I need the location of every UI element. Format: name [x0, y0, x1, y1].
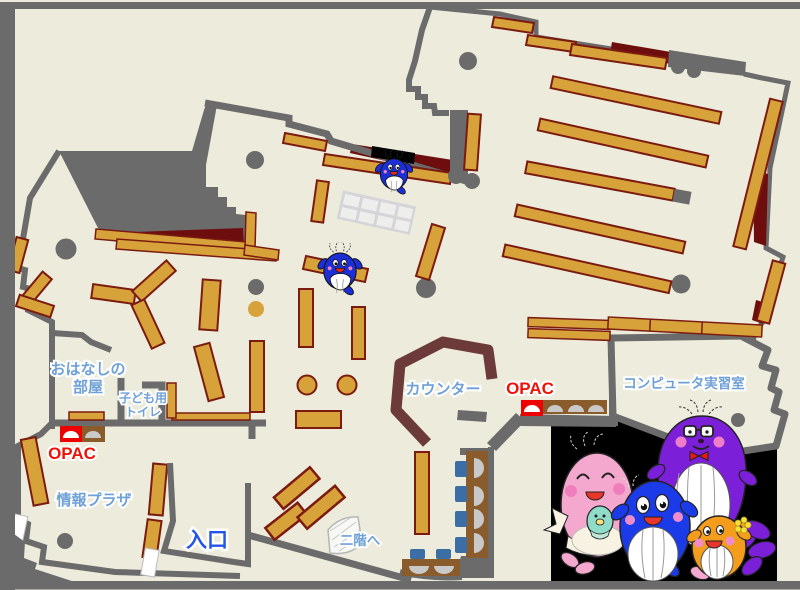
svg-text:部屋: 部屋	[73, 378, 103, 396]
svg-text:トイレ: トイレ	[125, 405, 161, 419]
svg-text:おはなしの: おはなしの	[50, 361, 125, 378]
svg-text:情報プラザ: 情報プラザ	[56, 491, 131, 509]
svg-text:入口: 入口	[186, 529, 228, 552]
svg-text:二階へ: 二階へ	[340, 532, 381, 548]
svg-text:OPAC: OPAC	[48, 444, 96, 463]
svg-text:コンピュータ実習室: コンピュータ実習室	[623, 375, 745, 391]
svg-text:子ども用: 子ども用	[119, 391, 167, 405]
svg-text:OPAC: OPAC	[506, 379, 554, 398]
svg-text:カウンター: カウンター	[405, 381, 480, 398]
